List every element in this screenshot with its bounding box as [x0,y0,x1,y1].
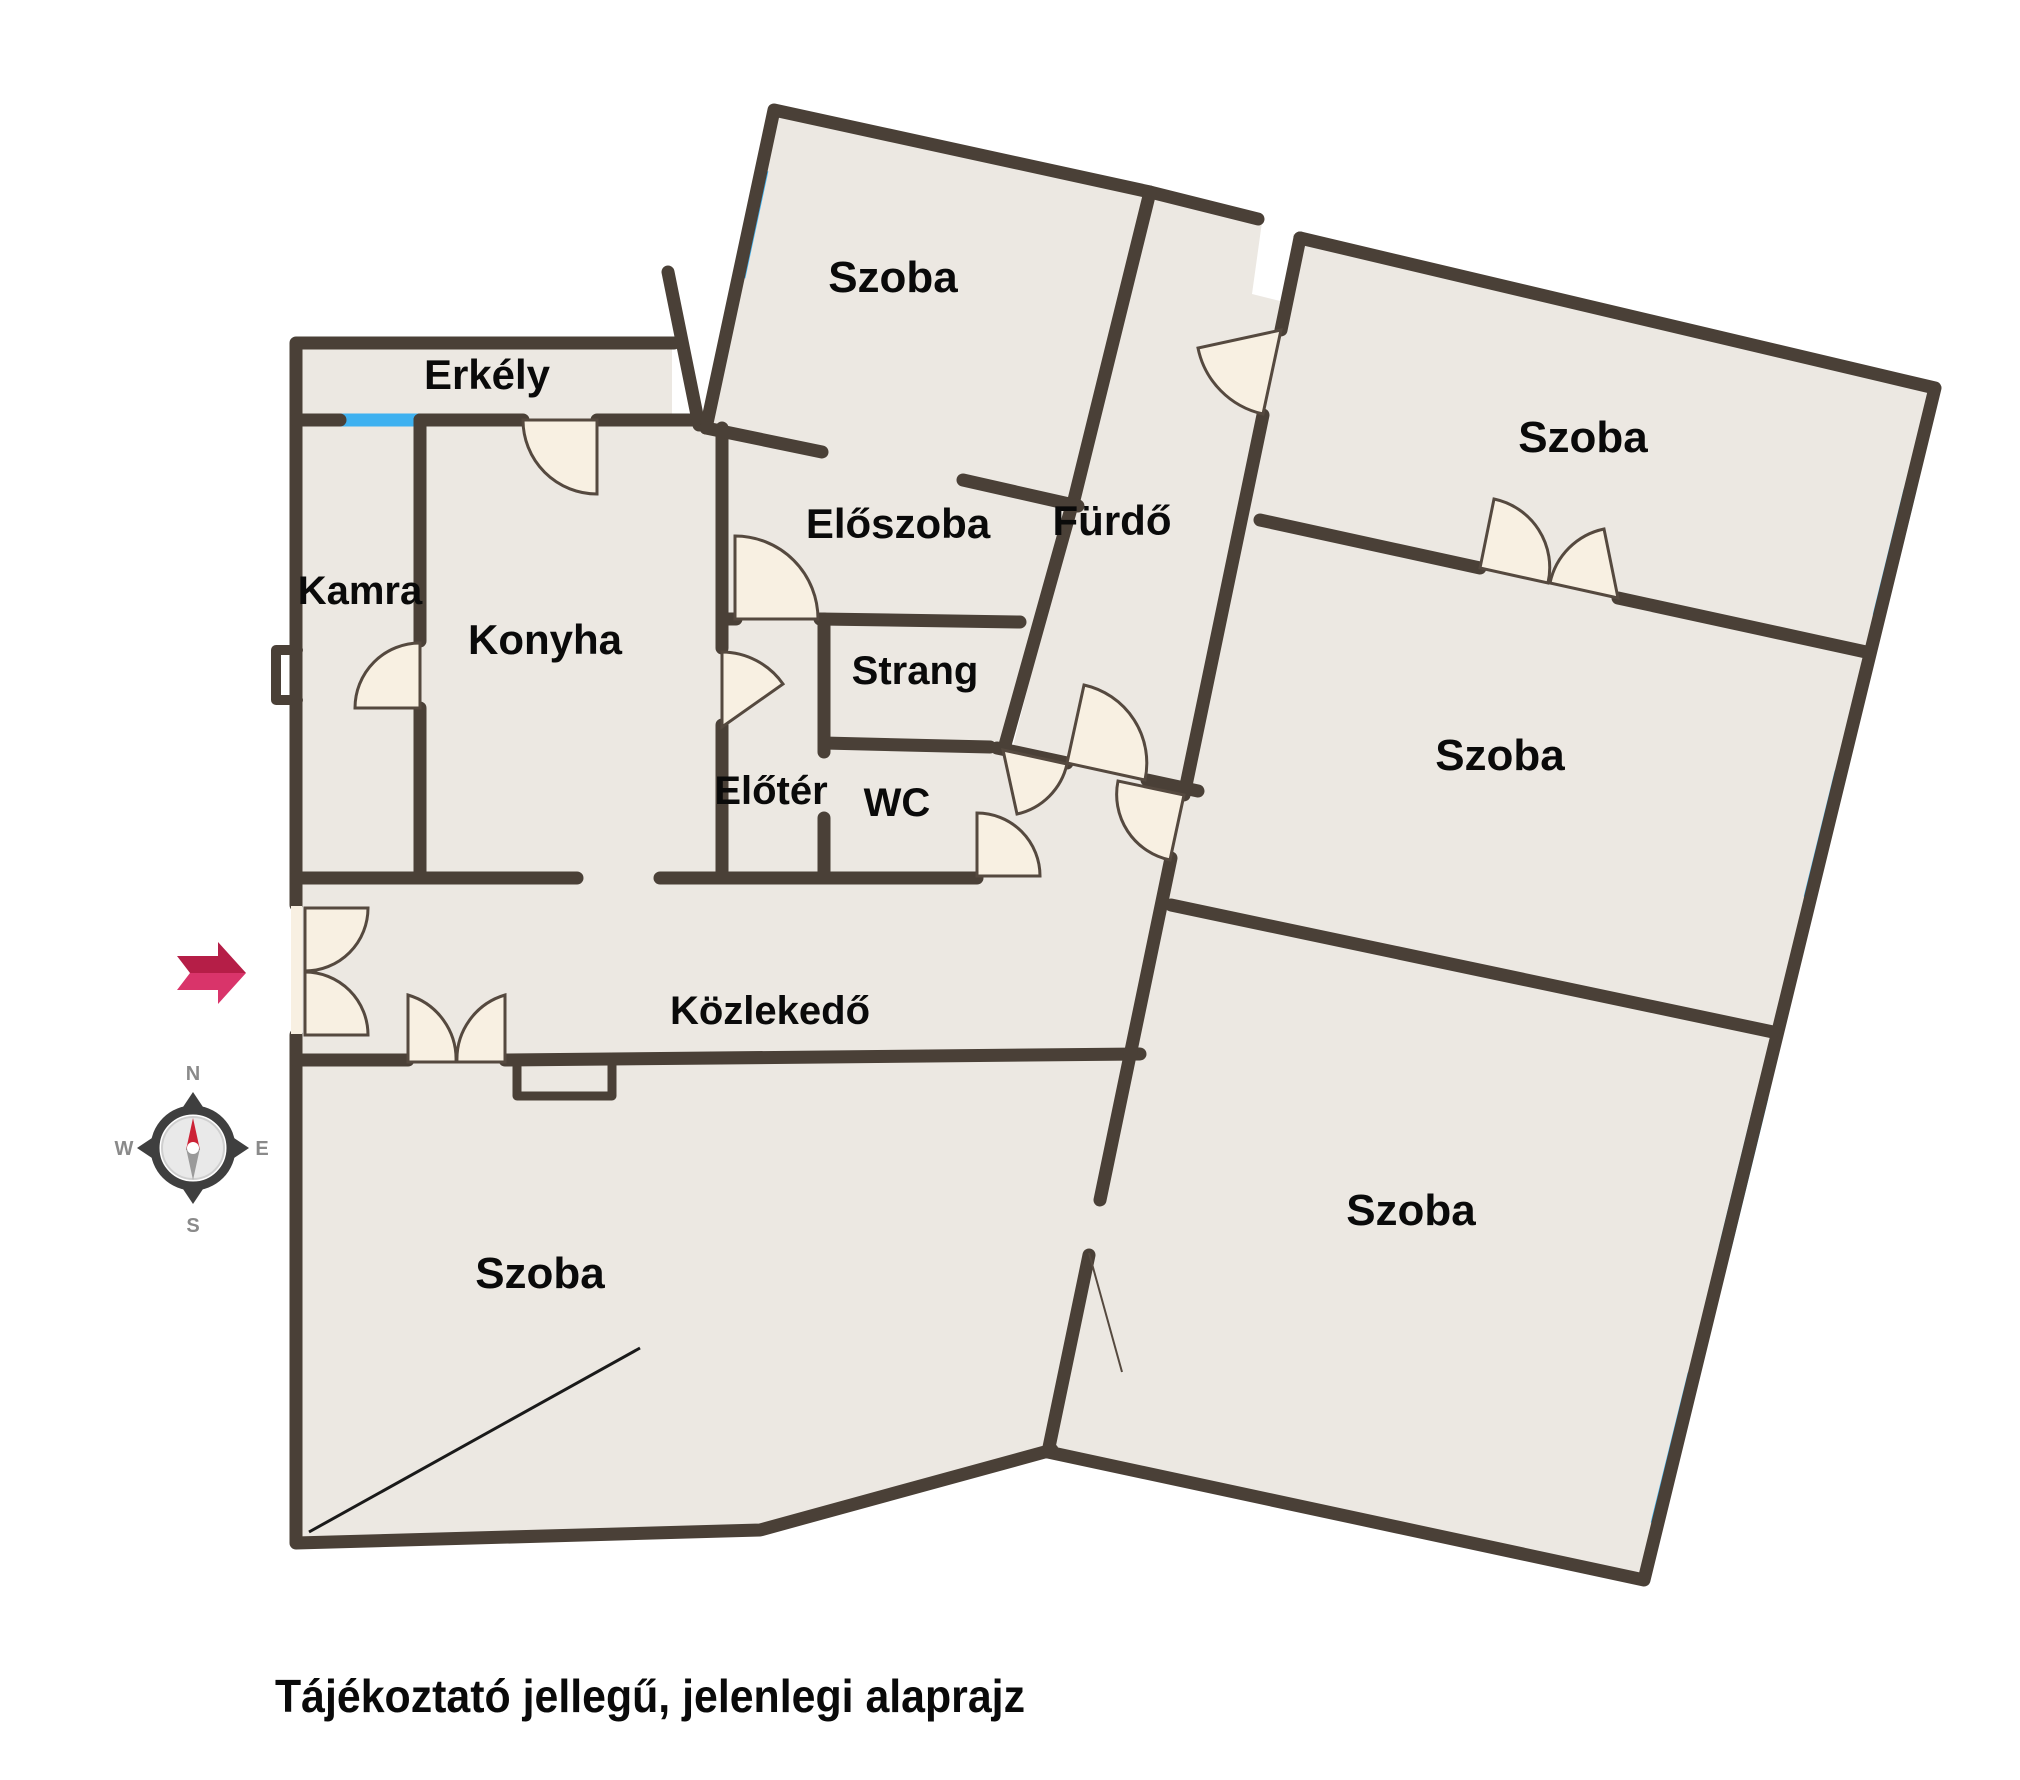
label-szoba-right-3: Szoba [1346,1186,1476,1235]
label-kozlekedo: Közlekedő [670,989,870,1033]
entrance-arrow-icon [177,942,246,1004]
label-szoba-right-2: Szoba [1435,731,1565,780]
floor-plan-page: Erkély Kamra Konyha Szoba Előszoba Fürdő… [0,0,2020,1780]
label-szoba-right-1: Szoba [1518,413,1648,462]
compass-point-north [181,1092,205,1110]
compass-rose-icon: N E S W [115,1063,269,1237]
compass-label-w: W [115,1138,134,1160]
compass-label-s: S [186,1215,199,1237]
label-eloter: Előtér [714,769,827,813]
compass-label-e: E [255,1138,268,1160]
entrance-arrow-top [177,942,246,973]
compass-point-east [231,1136,249,1160]
caption-text: Tájékoztató jellegű, jelenlegi alaprajz [275,1670,1025,1722]
label-eloszoba: Előszoba [806,500,991,547]
entrance-door-sill [291,906,302,1034]
wall-strang-wc-divider [824,743,990,747]
compass-point-south [181,1186,205,1204]
label-szoba-top: Szoba [828,253,958,302]
label-furdo: Fürdő [1053,497,1172,544]
floor-plan-drawing: Erkély Kamra Konyha Szoba Előszoba Fürdő… [0,0,2020,1780]
label-strang: Strang [852,649,979,693]
entrance-arrow-bottom [177,973,246,1004]
compass-label-n: N [186,1063,200,1085]
compass-hub [187,1142,199,1154]
label-szoba-bottom: Szoba [475,1249,605,1298]
label-wc: WC [864,781,931,825]
label-konyha: Konyha [468,616,623,663]
label-erkely: Erkély [424,351,551,398]
label-kamra: Kamra [298,569,423,613]
compass-point-west [137,1136,155,1160]
